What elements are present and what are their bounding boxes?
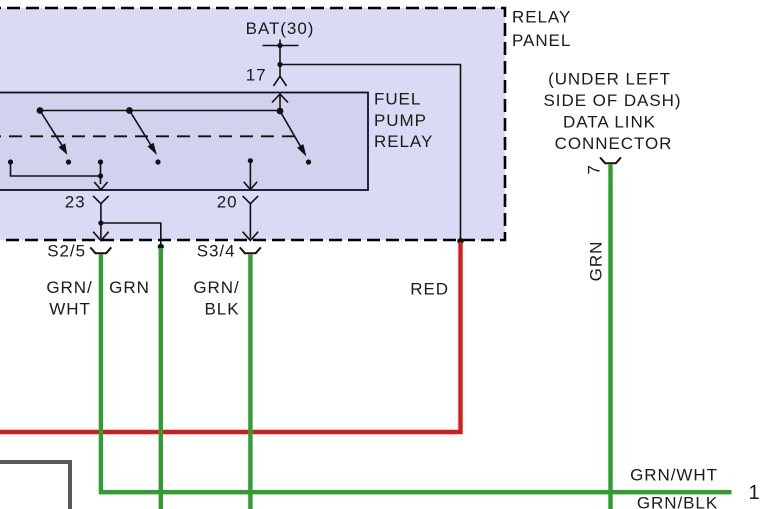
svg-text:GRN/WHT: GRN/WHT	[630, 466, 718, 485]
svg-text:FUEL: FUEL	[374, 90, 421, 109]
svg-text:23: 23	[65, 193, 86, 212]
svg-text:RELAY: RELAY	[374, 132, 433, 151]
svg-text:PUMP: PUMP	[374, 111, 427, 130]
svg-text:CONNECTOR: CONNECTOR	[555, 134, 673, 153]
svg-text:S3/4: S3/4	[197, 242, 236, 261]
svg-text:7: 7	[584, 164, 603, 174]
svg-text:1: 1	[748, 482, 760, 504]
svg-text:DATA LINK: DATA LINK	[563, 113, 656, 132]
svg-text:RED: RED	[410, 280, 449, 299]
svg-text:SIDE OF DASH): SIDE OF DASH)	[544, 91, 682, 110]
svg-text:GRN/BLK: GRN/BLK	[637, 493, 718, 509]
svg-text:BLK: BLK	[205, 300, 240, 319]
svg-text:WHT: WHT	[49, 300, 91, 319]
svg-text:GRN/: GRN/	[193, 278, 239, 297]
svg-text:GRN: GRN	[109, 278, 150, 297]
svg-text:GRN: GRN	[587, 241, 606, 282]
svg-text:20: 20	[217, 193, 238, 212]
svg-text:17: 17	[246, 66, 267, 85]
svg-text:PANEL: PANEL	[512, 31, 571, 50]
svg-text:RELAY: RELAY	[512, 7, 571, 26]
svg-text:BAT(30): BAT(30)	[246, 19, 315, 38]
svg-text:(UNDER LEFT: (UNDER LEFT	[548, 70, 671, 89]
svg-text:GRN/: GRN/	[46, 278, 92, 297]
svg-text:S2/5: S2/5	[47, 242, 86, 261]
